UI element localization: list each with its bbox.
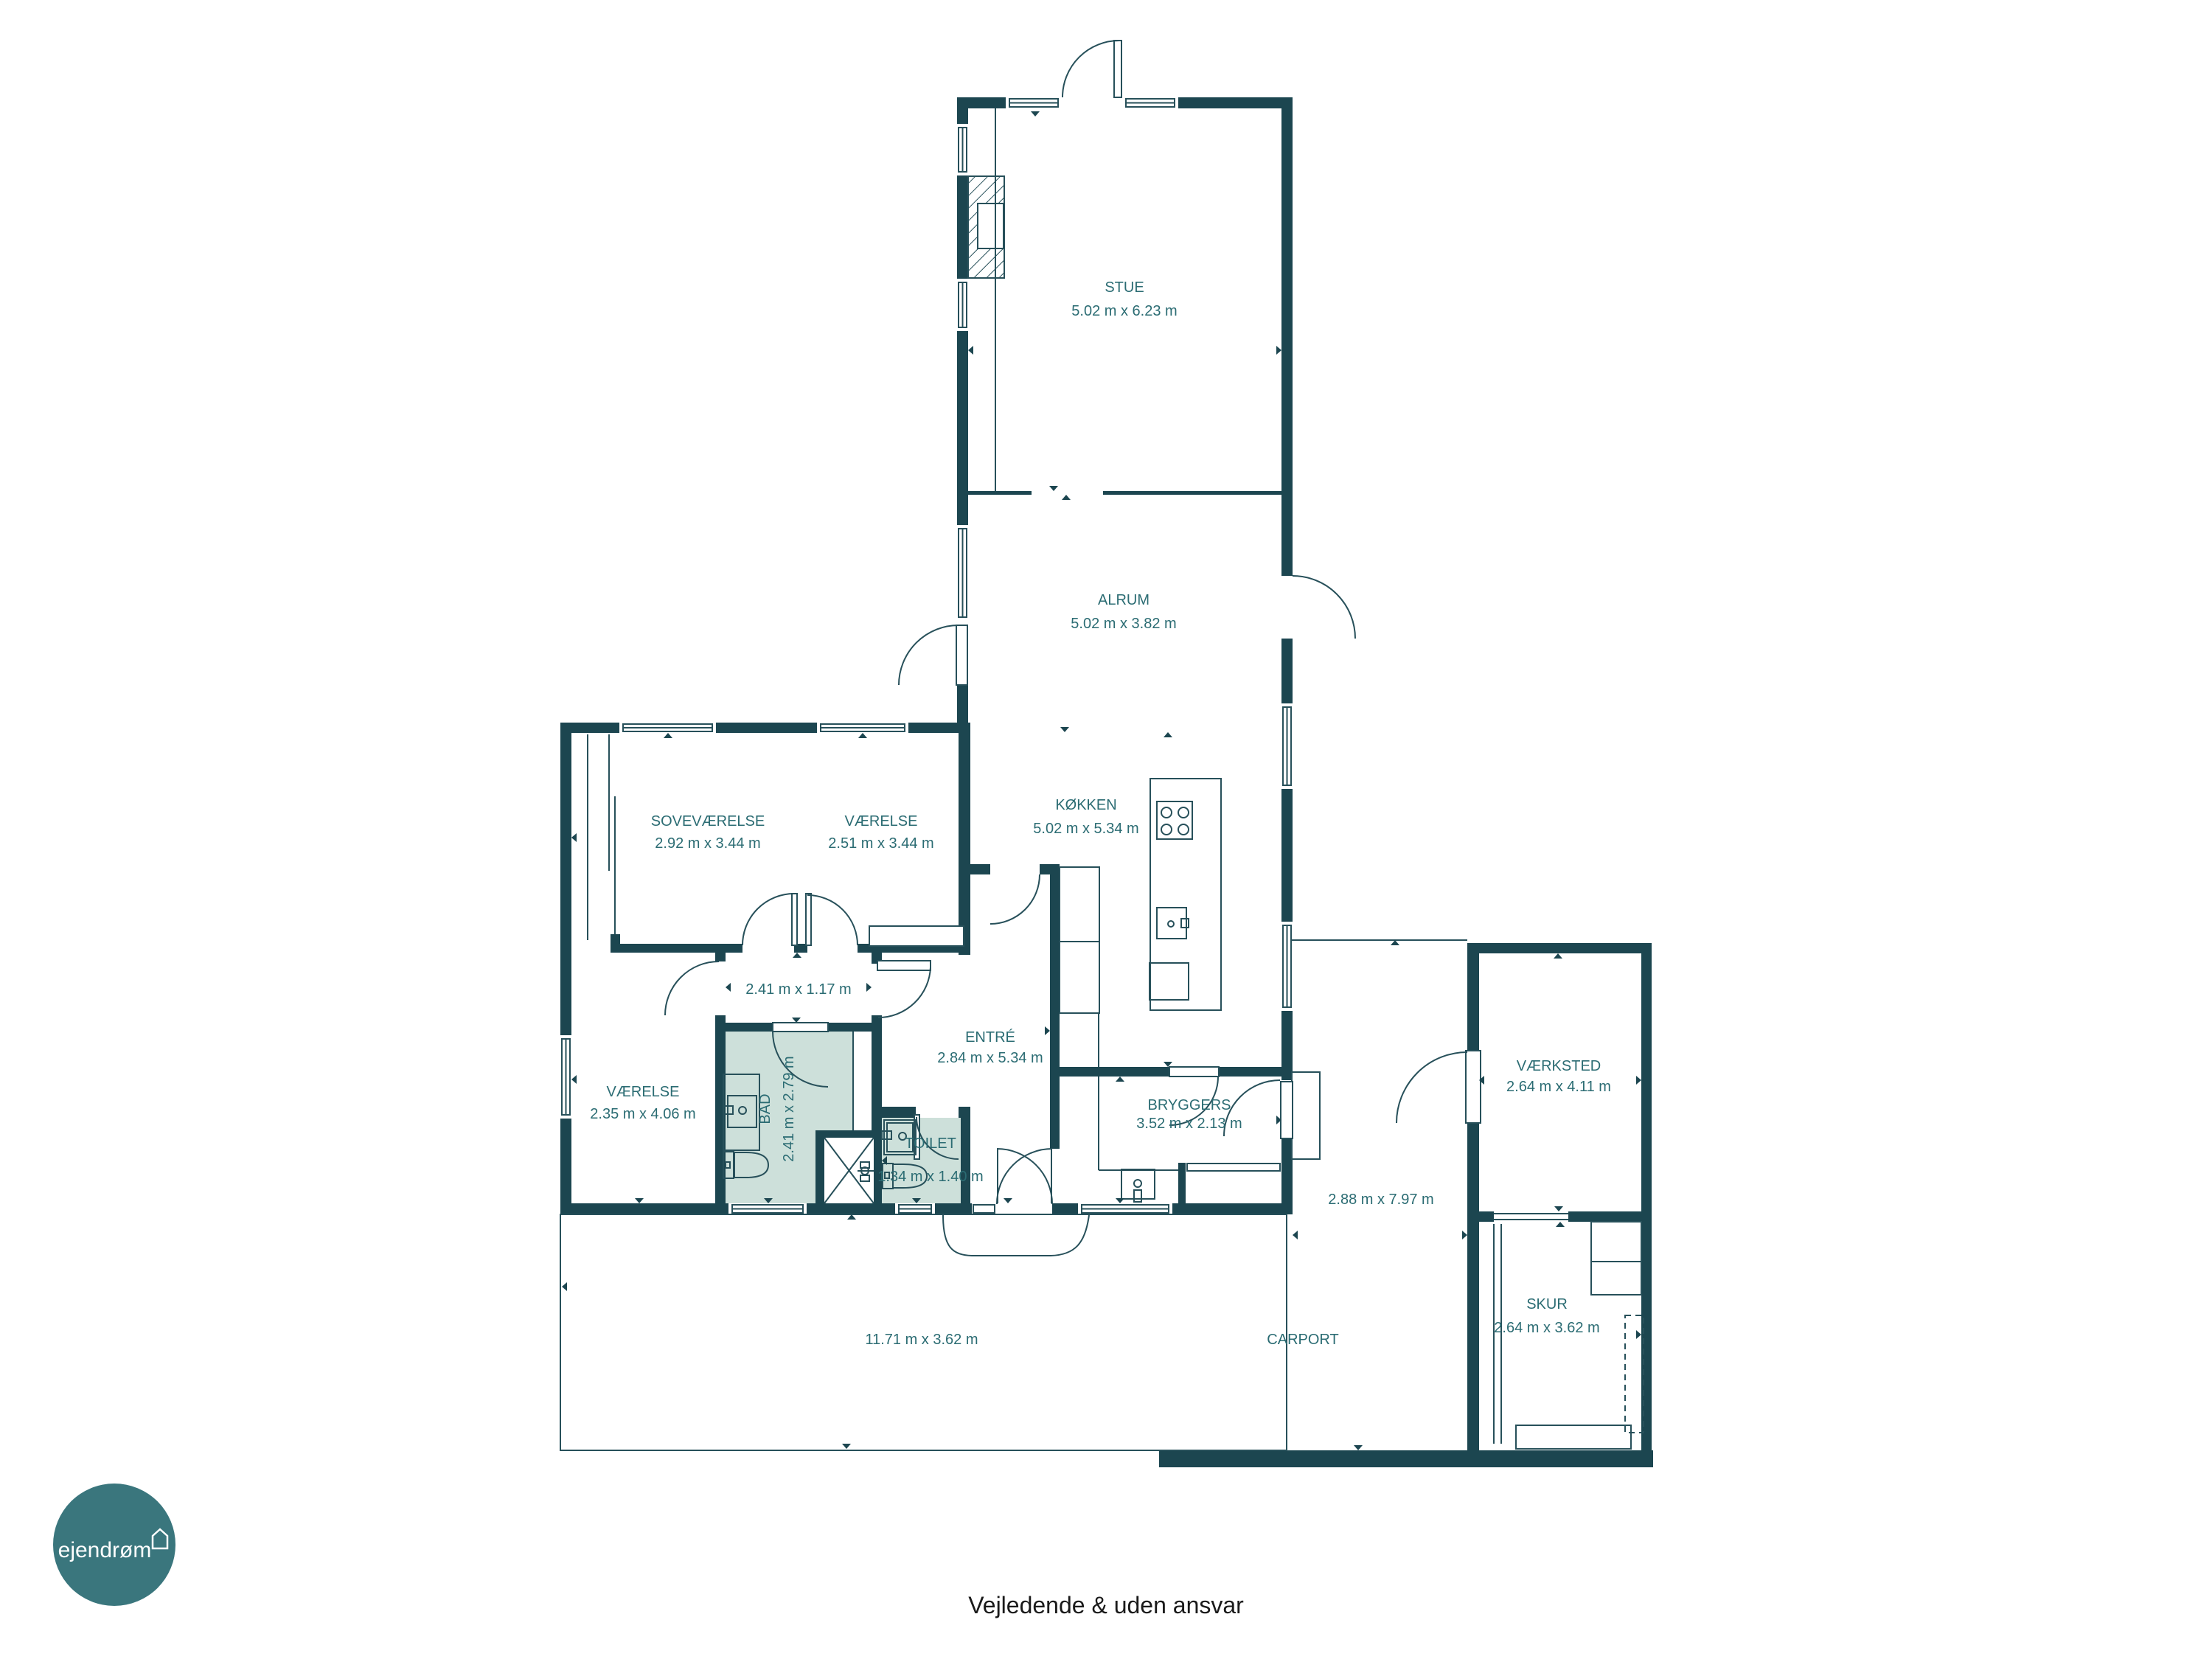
svg-text:KØKKEN: KØKKEN [1055,797,1116,813]
svg-text:ENTRÉ: ENTRÉ [965,1029,1015,1046]
svg-text:SOVEVÆRELSE: SOVEVÆRELSE [651,813,765,829]
svg-text:3.52 m x 2.13 m: 3.52 m x 2.13 m [1136,1116,1242,1132]
svg-text:2.64 m x 4.11 m: 2.64 m x 4.11 m [1506,1079,1611,1095]
svg-text:5.02 m x 3.82 m: 5.02 m x 3.82 m [1071,616,1176,632]
svg-text:2.88 m x 7.97 m: 2.88 m x 7.97 m [1328,1192,1433,1208]
svg-text:BAD: BAD [757,1093,773,1124]
svg-text:2.51 m x 3.44 m: 2.51 m x 3.44 m [828,835,933,852]
svg-text:2.41 m x 1.17 m: 2.41 m x 1.17 m [745,981,851,998]
svg-text:SKUR: SKUR [1526,1296,1568,1312]
svg-text:2.64 m x 3.62 m: 2.64 m x 3.62 m [1494,1320,1599,1336]
svg-text:BRYGGERS: BRYGGERS [1148,1097,1231,1113]
svg-text:2.92 m x 3.44 m: 2.92 m x 3.44 m [655,835,760,852]
svg-text:5.02 m x 5.34 m: 5.02 m x 5.34 m [1033,821,1138,837]
svg-text:VÆRELSE: VÆRELSE [607,1084,680,1100]
svg-text:CARPORT: CARPORT [1267,1332,1338,1348]
svg-text:ejendrøm: ejendrøm [58,1538,152,1562]
svg-text:VÆRELSE: VÆRELSE [845,813,918,829]
svg-text:ALRUM: ALRUM [1098,592,1150,608]
svg-text:VÆRKSTED: VÆRKSTED [1517,1058,1601,1074]
svg-text:Vejledende & uden ansvar: Vejledende & uden ansvar [968,1592,1244,1618]
svg-text:2.35 m x 4.06 m: 2.35 m x 4.06 m [590,1106,695,1122]
svg-text:2.41 m x 2.79 m: 2.41 m x 2.79 m [781,1056,797,1161]
svg-text:2.84 m x 5.34 m: 2.84 m x 5.34 m [937,1050,1043,1066]
svg-text:1.34 m x 1.40 m: 1.34 m x 1.40 m [877,1169,983,1185]
svg-text:5.02 m x 6.23 m: 5.02 m x 6.23 m [1071,303,1177,319]
svg-text:11.71 m x 3.62 m: 11.71 m x 3.62 m [865,1332,978,1348]
svg-text:STUE: STUE [1105,279,1144,296]
svg-text:TOILET: TOILET [905,1135,956,1152]
